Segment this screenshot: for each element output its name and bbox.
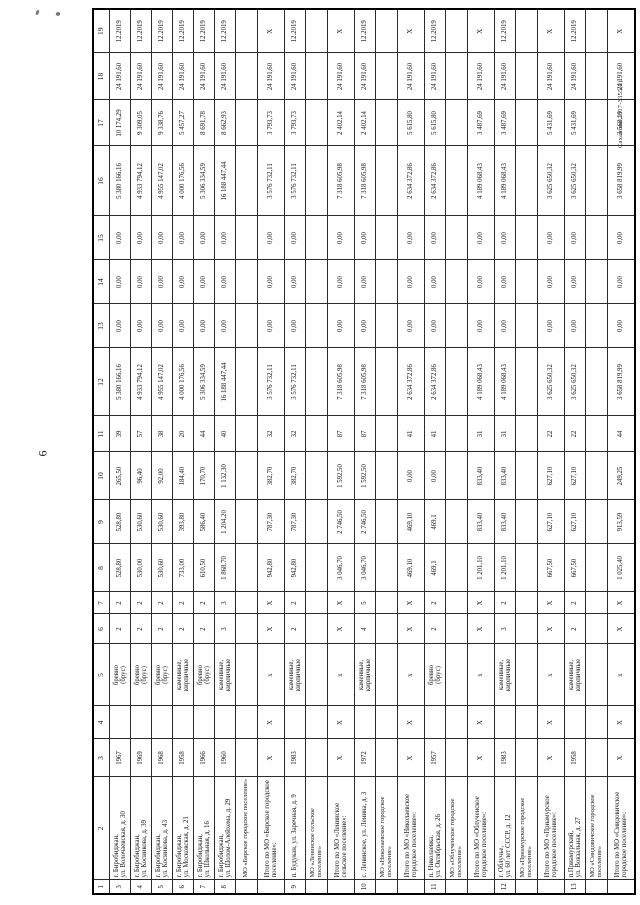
value-cell: 2 [152,592,173,614]
value-cell: 24 191,60 [495,53,516,100]
value-cell [516,739,538,777]
value-cell: 530,60 [152,500,173,544]
value-cell: 24 191,60 [538,53,565,100]
value-cell: 0,00 [425,304,446,348]
table-header-row: 12345678910111213141516171819 [93,9,110,894]
value-cell: 16 188 447,44 [215,348,236,416]
value-cell: 0,00 [152,260,173,304]
value-cell [376,880,398,894]
value-cell [236,739,258,777]
value-cell: X [258,9,285,53]
value-cell [586,880,608,894]
value-cell: х [538,644,565,706]
value-cell [516,53,538,100]
value-cell: 833,40 [468,452,495,500]
value-cell: 4 189 068,43 [495,146,516,216]
value-cell [306,706,328,739]
table-row-total: Итого по МО «Ленинское сельское поселени… [328,9,355,894]
value-cell: 24 191,60 [355,53,376,100]
value-cell: 3 576 732,11 [285,146,306,216]
value-cell: 942,80 [258,544,285,592]
column-number-cell: 11 [93,416,110,452]
address-cell: п. Николаевка, ул. Октябрьская, д. 26 [425,777,446,880]
value-cell [516,880,538,894]
value-cell: 0,00 [608,304,636,348]
value-cell [608,880,636,894]
value-cell [376,452,398,500]
value-cell: X [538,614,565,644]
value-cell: 5 [152,880,173,894]
value-cell: 4 189 068,43 [468,348,495,416]
value-cell: 0,00 [538,304,565,348]
value-cell [236,146,258,216]
value-cell: 1972 [355,739,376,777]
value-cell: 5 [355,592,376,614]
column-number-cell: 19 [93,9,110,53]
value-cell: 2 [194,592,215,614]
value-cell [516,348,538,416]
value-cell: 92,00 [152,452,173,500]
value-cell: бревно (брус) [131,644,152,706]
value-cell: 24 191,60 [194,53,215,100]
value-cell [376,416,398,452]
value-cell: 5 306 334,59 [194,146,215,216]
value-cell: 667,50 [565,544,586,592]
value-cell: 2 [194,614,215,644]
value-cell: 5 615,80 [425,100,446,146]
value-cell: 44 [194,416,215,452]
table-row-data: 5г. Биробиджан, ул. Косникова, д. 431968… [152,9,173,894]
value-cell: 3 793,73 [258,100,285,146]
value-cell: 667,50 [538,544,565,592]
value-cell: 12.2019 [110,9,131,53]
value-cell [516,592,538,614]
section-label-cell: МО «Приамурское городское поселение» [516,777,538,880]
table-row-data: 12г. Облучье, ул. 60 лет СССР, д. 121983… [495,9,516,894]
value-cell: 0,00 [565,216,586,260]
section-label-cell: МО «Смидовичское городское поселение» [586,777,608,880]
value-cell: 40 [215,416,236,452]
value-cell: 16 188 447,44 [215,146,236,216]
value-cell: 96,40 [131,452,152,500]
section-label-cell: МО «Ленинское сельское поселение» [306,777,328,880]
value-cell: 0,00 [538,260,565,304]
value-cell: 0,00 [285,260,306,304]
value-cell: X [538,592,565,614]
value-cell: 1 201,10 [495,544,516,592]
value-cell: 0,00 [258,260,285,304]
value-cell: 0,00 [565,304,586,348]
value-cell: 0,00 [131,260,152,304]
table-row-data: 9п. Будукан, ул. Заречная, д. 91983камен… [285,9,306,894]
value-cell: 5 457,27 [173,100,194,146]
value-cell: 0,00 [258,216,285,260]
value-cell [306,146,328,216]
column-number-cell: 7 [93,592,110,614]
value-cell: каменные, кирпичные [173,644,194,706]
value-cell: 0,00 [495,216,516,260]
value-cell [306,614,328,644]
value-cell: 382,70 [258,452,285,500]
value-cell: 787,30 [285,500,306,544]
value-cell: 4 189 068,43 [468,146,495,216]
value-cell: 2 [425,592,446,614]
value-cell [446,739,468,777]
value-cell: 3 [215,614,236,644]
total-label-cell: Итого по МО «Смидовичское городское посе… [608,777,636,880]
value-cell: 9 309,05 [131,100,152,146]
value-cell [446,416,468,452]
value-cell [236,216,258,260]
value-cell: бревно (брус) [194,644,215,706]
value-cell: 7 318 605,98 [328,348,355,416]
address-cell: г. Биробиджан, ул. Московская, д. 21 [173,777,194,880]
value-cell: 5 615,80 [398,100,425,146]
table-row-section: МО «Приамурское городское поселение» [516,9,538,894]
value-cell: 2 [110,614,131,644]
value-cell: 9 338,76 [152,100,173,146]
value-cell: 5 431,69 [565,100,586,146]
value-cell: 0,00 [398,304,425,348]
value-cell: 610,50 [194,544,215,592]
value-cell: 32 [285,416,306,452]
value-cell [328,880,355,894]
value-cell: 0,00 [285,216,306,260]
value-cell: 4 [131,880,152,894]
value-cell: 3 576 732,11 [258,348,285,416]
value-cell: X [328,739,355,777]
value-cell: 530,60 [152,544,173,592]
value-cell: X [398,739,425,777]
value-cell: 12.2019 [173,9,194,53]
value-cell: X [398,592,425,614]
value-cell: 57 [131,416,152,452]
value-cell: 1958 [173,739,194,777]
value-cell [376,53,398,100]
value-cell: 382,70 [285,452,306,500]
value-cell: 627,10 [538,452,565,500]
value-cell: X [328,706,355,739]
value-cell: 0,00 [355,260,376,304]
value-cell [446,9,468,53]
value-cell: X [468,706,495,739]
value-cell: 1968 [152,739,173,777]
value-cell [446,544,468,592]
value-cell: 3 [215,592,236,614]
value-cell: 3 046,70 [355,544,376,592]
value-cell: 10 [355,880,376,894]
value-cell: 0,00 [355,304,376,348]
value-cell: 24 191,60 [398,53,425,100]
value-cell: 20 [173,416,194,452]
value-cell: X [328,614,355,644]
value-cell [516,706,538,739]
value-cell: 0,00 [215,260,236,304]
value-cell: 5 306 334,59 [194,348,215,416]
value-cell: 1 592,50 [328,452,355,500]
value-cell [586,146,608,216]
value-cell: 2 634 372,86 [398,348,425,416]
value-cell: х [468,644,495,706]
column-number-cell: 1 [93,880,110,894]
value-cell [236,416,258,452]
value-cell: 3 576 732,11 [285,348,306,416]
value-cell: каменные, кирпичные [495,644,516,706]
value-cell: X [398,614,425,644]
value-cell [376,146,398,216]
value-cell: 833,40 [495,500,516,544]
total-label-cell: Итого по МО «Облученское городское посел… [468,777,495,880]
value-cell: 24 191,60 [258,53,285,100]
value-cell: 5 380 166,16 [110,348,131,416]
value-cell [306,304,328,348]
value-cell [398,880,425,894]
value-cell: 469,1 [425,544,446,592]
value-cell [468,880,495,894]
table-row-section: МО «Смидовичское городское поселение» [586,9,608,894]
value-cell [236,592,258,614]
address-cell: г. Биробиджан, ул. Шолом-Алейхема, д. 29 [215,777,236,880]
value-cell: 0,00 [398,452,425,500]
value-cell: 24 191,60 [425,53,446,100]
value-cell: 4 189 068,43 [495,348,516,416]
document-reference: Саханова/2017-3355(2) [617,56,624,148]
value-cell: каменные, кирпичные [355,644,376,706]
value-cell: 2 [110,592,131,614]
value-cell: 11 [425,880,446,894]
value-cell: 2 [285,592,306,614]
value-cell: 913,59 [608,500,636,544]
value-cell: 0,00 [538,216,565,260]
value-cell: 39 [110,416,131,452]
value-cell: X [328,592,355,614]
value-cell [236,544,258,592]
value-cell: 2 [565,592,586,614]
section-label-cell: МО «Николаевское городское поселение» [376,777,398,880]
value-cell: 12.2019 [425,9,446,53]
value-cell: X [608,9,636,53]
value-cell [376,706,398,739]
value-cell: 31 [468,416,495,452]
value-cell [446,304,468,348]
value-cell [306,500,328,544]
address-cell: г. Биробиджан, ул. Школьная, д. 16 [194,777,215,880]
value-cell: 2 634 372,86 [398,146,425,216]
value-cell [446,706,468,739]
value-cell: 1958 [565,739,586,777]
value-cell: 4 933 794,12 [131,146,152,216]
value-cell: 24 191,60 [131,53,152,100]
value-cell: 24 191,60 [565,53,586,100]
value-cell: 41 [398,416,425,452]
value-cell: 12.2019 [355,9,376,53]
value-cell: 13 [565,880,586,894]
value-cell: 1983 [495,739,516,777]
value-cell [236,304,258,348]
value-cell: бревно (брус) [152,644,173,706]
value-cell: 1 201,10 [468,544,495,592]
table-row-total: Итого по МО «Николаевское городское посе… [398,9,425,894]
value-cell: 22 [565,416,586,452]
value-cell: 0,00 [110,304,131,348]
column-number-cell: 16 [93,146,110,216]
value-cell [376,500,398,544]
value-cell: 87 [328,416,355,452]
value-cell [236,260,258,304]
column-number-cell: 12 [93,348,110,416]
value-cell [376,216,398,260]
value-cell [446,500,468,544]
value-cell: 3 625 650,32 [538,348,565,416]
value-cell [586,739,608,777]
value-cell: 12.2019 [152,9,173,53]
value-cell: 2 634 372,86 [425,146,446,216]
value-cell: 0,00 [425,452,446,500]
total-label-cell: Итого по МО «Бирское городское поселение… [258,777,285,880]
value-cell [495,706,516,739]
value-cell: 3 487,69 [495,100,516,146]
column-number-cell: 2 [93,777,110,880]
value-cell: 12.2019 [131,9,152,53]
value-cell: 0,00 [110,260,131,304]
value-cell [446,260,468,304]
value-cell: X [258,739,285,777]
value-cell [306,592,328,614]
value-cell [586,348,608,416]
address-cell: г. Биробиджан, ул. Волочаевская, д. 30 [110,777,131,880]
value-cell: 0,00 [425,216,446,260]
value-cell [306,100,328,146]
value-cell [586,53,608,100]
value-cell: 0,00 [328,260,355,304]
value-cell: каменные, кирпичные [565,644,586,706]
value-cell: 3 658 819,99 [608,146,636,216]
table-row-total: Итого по МО «Бирское городское поселение… [258,9,285,894]
value-cell: 24 191,60 [215,53,236,100]
value-cell [516,216,538,260]
value-cell: 0,00 [194,260,215,304]
value-cell [236,100,258,146]
value-cell: 12.2019 [215,9,236,53]
value-cell: 87 [355,416,376,452]
value-cell: 733,00 [173,544,194,592]
value-cell: 3 625 650,32 [565,348,586,416]
value-cell: 586,40 [194,500,215,544]
value-cell [586,216,608,260]
value-cell: X [608,592,636,614]
value-cell: 3 625 650,32 [538,146,565,216]
value-cell: 1 025,40 [608,544,636,592]
value-cell [306,739,328,777]
buildings-table: 123456789101112131415161718193г. Биробид… [92,8,636,895]
value-cell: 4 000 176,56 [173,146,194,216]
value-cell [376,614,398,644]
value-cell: 4 000 176,56 [173,348,194,416]
value-cell: 3 658 819,99 [608,348,636,416]
value-cell: X [468,9,495,53]
value-cell: 0,00 [194,304,215,348]
value-cell: 3 046,70 [328,544,355,592]
value-cell: 24 191,60 [468,53,495,100]
value-cell: 3 [495,614,516,644]
value-cell [355,706,376,739]
value-cell: 0,00 [468,260,495,304]
value-cell: 2 746,50 [328,500,355,544]
value-cell: 528,80 [110,544,131,592]
value-cell [306,544,328,592]
value-cell: 0,00 [425,260,446,304]
value-cell [236,614,258,644]
value-cell [236,452,258,500]
value-cell: 2 [173,592,194,614]
value-cell [565,706,586,739]
value-cell: 0,00 [131,216,152,260]
table-row-data: 3г. Биробиджан, ул. Волочаевская, д. 301… [110,9,131,894]
value-cell [376,592,398,614]
value-cell: 2 [285,614,306,644]
value-cell: 1969 [131,739,152,777]
value-cell: 12.2019 [194,9,215,53]
value-cell [236,53,258,100]
value-cell: 3 576 732,11 [258,146,285,216]
section-label-cell: МО «Бирское городское поселение» [236,777,258,880]
value-cell [236,500,258,544]
value-cell: 2 [173,614,194,644]
value-cell: 0,00 [608,216,636,260]
value-cell [376,9,398,53]
value-cell: 41 [425,416,446,452]
value-cell: 4 955 147,02 [152,348,173,416]
table-row-section: МО «Николаевское городское поселение» [376,9,398,894]
value-cell [516,9,538,53]
value-cell: 833,40 [468,500,495,544]
value-cell: 0,00 [173,216,194,260]
value-cell [446,880,468,894]
column-number-cell: 6 [93,614,110,644]
value-cell: 12.2019 [495,9,516,53]
value-cell: 0,00 [328,216,355,260]
value-cell [446,146,468,216]
value-cell [538,880,565,894]
value-cell: 5 380 166,16 [110,146,131,216]
value-cell [446,100,468,146]
address-cell: с. Ленинское, ул. Ленина, д. 3 [355,777,376,880]
value-cell: 8 691,78 [194,100,215,146]
value-cell: 0,00 [468,216,495,260]
value-cell: х [608,644,636,706]
value-cell: 787,30 [258,500,285,544]
value-cell [131,706,152,739]
value-cell: 44 [608,416,636,452]
value-cell: 10 174,29 [110,100,131,146]
column-number-cell: 10 [93,452,110,500]
value-cell: 2 [131,592,152,614]
value-cell: 0,00 [565,260,586,304]
value-cell [376,644,398,706]
value-cell: 530,00 [131,544,152,592]
value-cell [586,644,608,706]
value-cell: X [608,706,636,739]
total-label-cell: Итого по МО «Приамурское городское посел… [538,777,565,880]
value-cell: 22 [538,416,565,452]
value-cell: 7 318 605,98 [355,348,376,416]
value-cell: 627,10 [565,452,586,500]
value-cell [516,544,538,592]
value-cell [516,500,538,544]
value-cell: 7 318 605,98 [355,146,376,216]
column-number-cell: 4 [93,706,110,739]
value-cell [586,9,608,53]
